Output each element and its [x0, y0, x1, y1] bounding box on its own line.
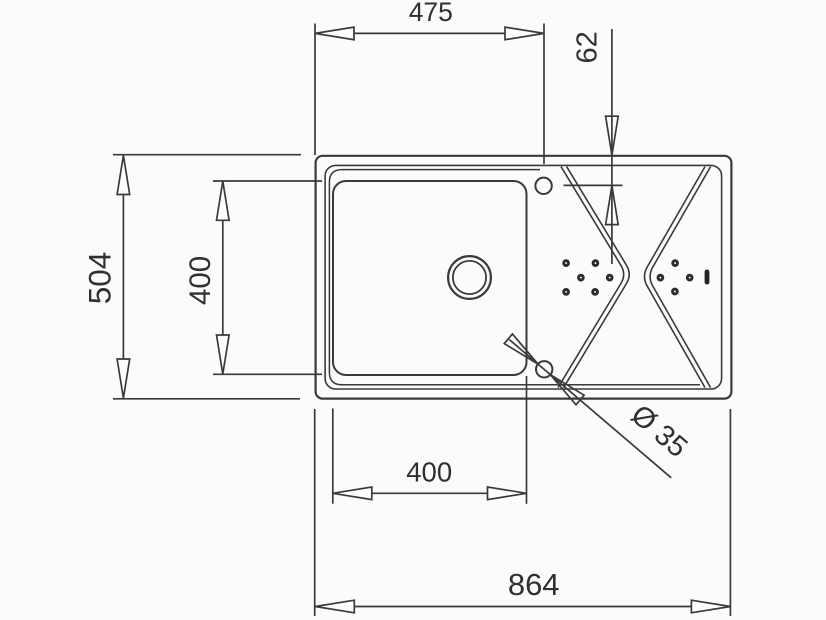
svg-text:475: 475: [409, 0, 453, 27]
svg-text:400: 400: [184, 256, 217, 305]
svg-text:864: 864: [508, 567, 560, 602]
svg-text:504: 504: [81, 252, 117, 305]
svg-text:Ø 35: Ø 35: [625, 399, 694, 464]
svg-text:62: 62: [572, 31, 604, 63]
svg-text:400: 400: [406, 457, 452, 488]
